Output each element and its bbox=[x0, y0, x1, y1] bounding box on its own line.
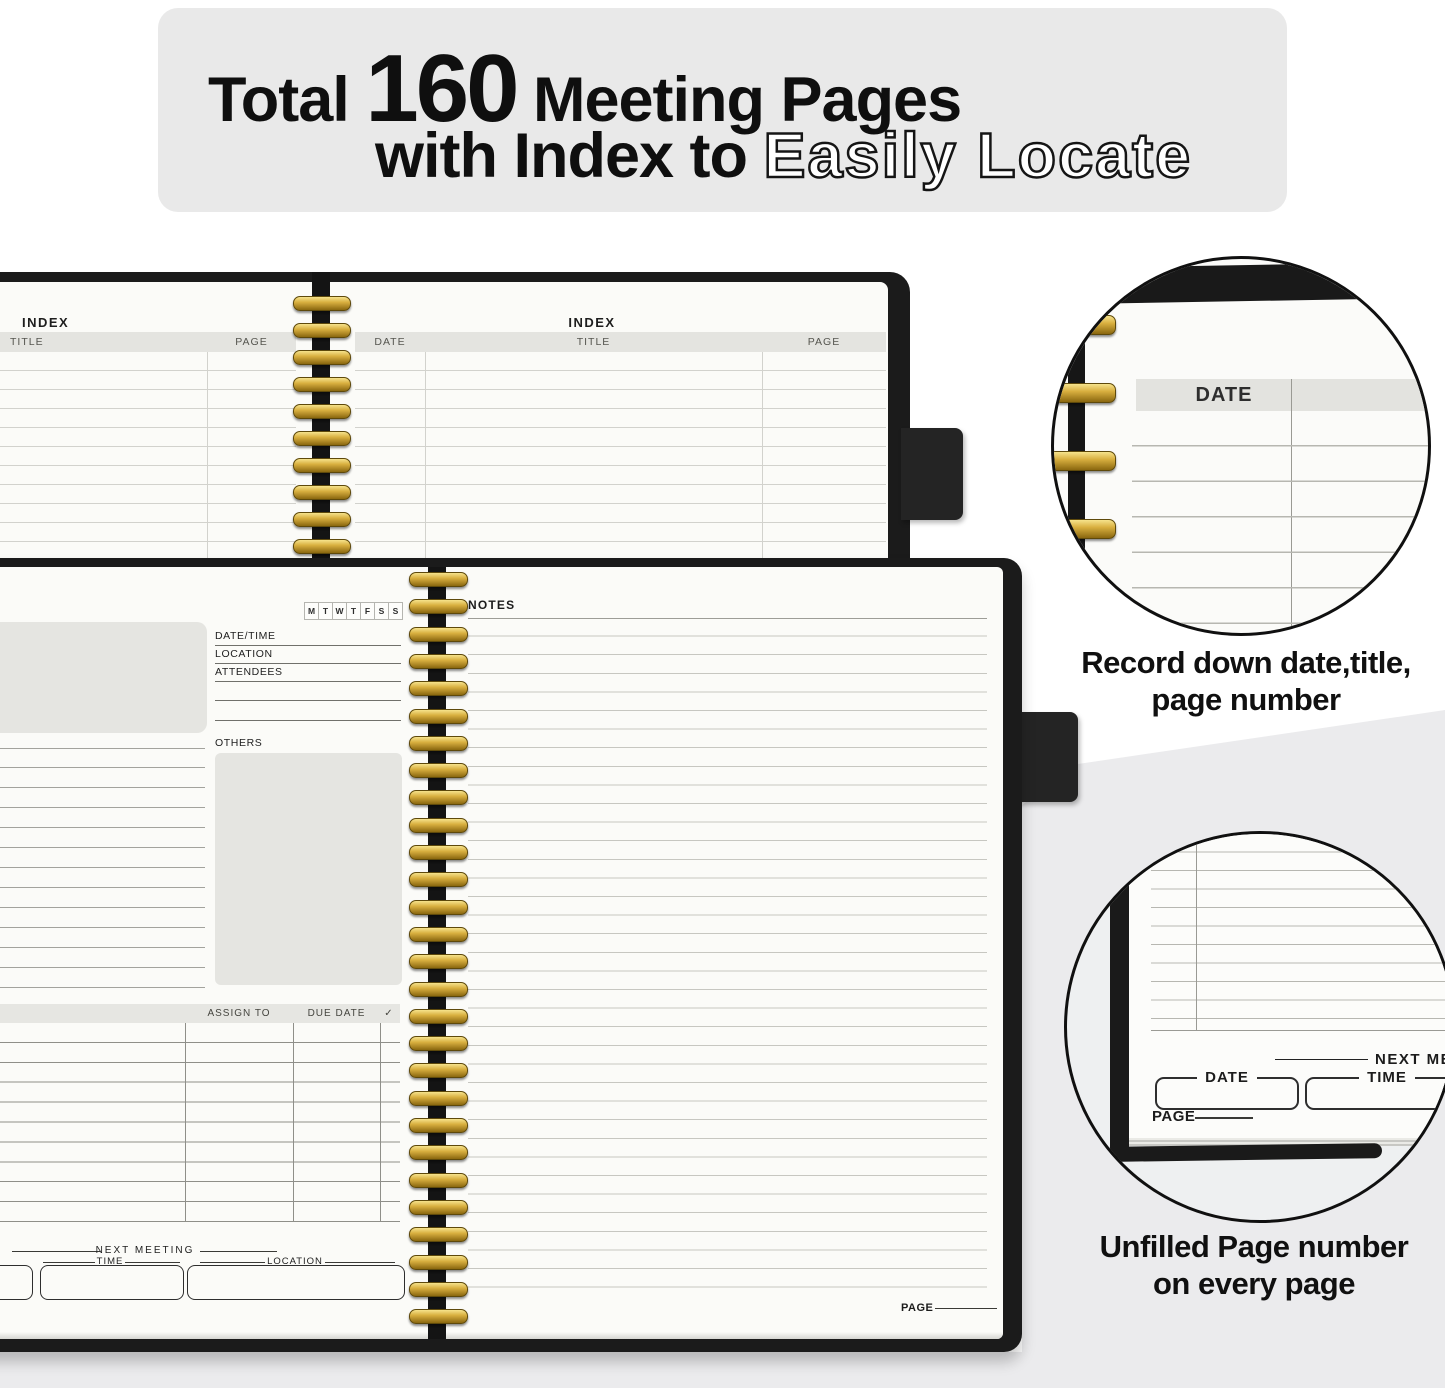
index-left-title: INDEX bbox=[22, 315, 69, 330]
spiral-coil bbox=[1051, 519, 1116, 539]
weekday-checkboxes: M T W T F S S bbox=[305, 602, 403, 620]
spiral-coil bbox=[409, 599, 468, 614]
spiral-coil bbox=[409, 709, 468, 724]
spiral-coil bbox=[293, 350, 351, 365]
index-left-rows bbox=[0, 352, 296, 560]
meeting-notebook: M T W T F S S DATE/TIME LOCATION ATTENDE… bbox=[0, 558, 1022, 1352]
weekday-cell: W bbox=[332, 602, 347, 620]
spiral-coil bbox=[409, 572, 468, 587]
magnified-cover-bottom-edge bbox=[1110, 1143, 1382, 1162]
headline-line1-prefix: Total bbox=[208, 65, 365, 135]
spiral-coil bbox=[293, 458, 351, 473]
notes-lines bbox=[468, 618, 987, 1298]
action-table-rows bbox=[0, 1023, 400, 1222]
magnified-index-rows bbox=[1132, 411, 1428, 633]
attendees-extra-line bbox=[215, 706, 401, 721]
magnified-date-header: DATE bbox=[1136, 379, 1428, 411]
weekday-cell: F bbox=[360, 602, 375, 620]
weekday-cell: T bbox=[318, 602, 333, 620]
spiral-coil bbox=[293, 296, 351, 311]
magnified-date-box: DATE bbox=[1155, 1077, 1299, 1110]
magnified-time-box-label: TIME bbox=[1359, 1069, 1415, 1086]
page-number-label: PAGE bbox=[901, 1302, 933, 1314]
index-right-rows bbox=[355, 352, 886, 560]
headline-line2: with Index to Easily Locate bbox=[375, 120, 1192, 192]
spiral-coil bbox=[1051, 587, 1116, 607]
magnified-page-label: PAGE bbox=[1152, 1108, 1195, 1125]
index-right-title: INDEX bbox=[492, 315, 692, 330]
spiral-coil bbox=[409, 927, 468, 942]
action-table-header: ASSIGN TO DUE DATE ✓ bbox=[0, 1004, 400, 1023]
weekday-cell: S bbox=[388, 602, 403, 620]
next-meeting-label: NEXT MEETING bbox=[95, 1245, 195, 1256]
action-table-divider-1 bbox=[185, 1023, 186, 1222]
index-left-col-title: TITLE bbox=[10, 332, 70, 352]
index-right-divider-1 bbox=[425, 352, 426, 560]
spiral-coil bbox=[409, 627, 468, 642]
caption-top-line1: Record down date,title, bbox=[1058, 644, 1434, 681]
weekday-cell: M bbox=[304, 602, 319, 620]
magnifier-circle-bottom: NEXT MEETIN DATE TIME PAGE bbox=[1064, 831, 1445, 1223]
page-number-field: PAGE bbox=[901, 1302, 997, 1314]
index-notebook: INDEX TITLE PAGE INDEX DATE TITLE PAGE bbox=[0, 272, 910, 602]
magnified-cover-left-edge bbox=[1110, 874, 1129, 1160]
caption-bottom-line2: on every page bbox=[1068, 1265, 1440, 1302]
spiral-coil bbox=[409, 1255, 468, 1270]
others-box bbox=[215, 753, 402, 985]
index-left-column-divider bbox=[207, 352, 208, 560]
check-header: ✓ bbox=[378, 1004, 400, 1023]
index-right-divider-2 bbox=[762, 352, 763, 560]
spiral-coil bbox=[409, 954, 468, 969]
spiral-coil bbox=[409, 1091, 468, 1106]
spiral-coil bbox=[293, 539, 351, 554]
magnified-page-number-field: PAGE bbox=[1152, 1108, 1253, 1125]
spiral-coil bbox=[409, 654, 468, 669]
spiral-coil bbox=[293, 431, 351, 446]
magnifier-circle-top: DATE bbox=[1051, 256, 1431, 636]
spiral-coil bbox=[409, 845, 468, 860]
spiral-coil bbox=[1051, 383, 1116, 403]
meeting-notebook-pages: M T W T F S S DATE/TIME LOCATION ATTENDE… bbox=[0, 567, 1003, 1339]
spiral-coil bbox=[409, 1009, 468, 1024]
spiral-coil bbox=[1051, 451, 1116, 471]
spiral-coil bbox=[409, 1173, 468, 1188]
spiral-coil bbox=[409, 681, 468, 696]
spiral-coil bbox=[409, 1145, 468, 1160]
index-left-header-row: TITLE PAGE bbox=[0, 332, 296, 352]
caption-top: Record down date,title, page number bbox=[1058, 644, 1434, 718]
caption-top-line2: page number bbox=[1058, 681, 1434, 718]
action-table-divider-2 bbox=[293, 1023, 294, 1222]
magnified-table-bottom-line bbox=[1151, 1030, 1445, 1031]
magnified-date-label: DATE bbox=[1164, 379, 1284, 411]
caption-bottom-line1: Unfilled Page number bbox=[1068, 1228, 1440, 1265]
spiral-coil bbox=[293, 512, 351, 527]
dash-line bbox=[200, 1262, 265, 1263]
magnified-time-box: TIME bbox=[1305, 1077, 1445, 1110]
due-date-header: DUE DATE bbox=[293, 1004, 380, 1023]
spiral-coil bbox=[409, 1309, 468, 1324]
spiral-coil bbox=[293, 377, 351, 392]
index-right-col-title: TITLE bbox=[425, 332, 762, 352]
others-label: OTHERS bbox=[215, 737, 262, 749]
dash-line bbox=[125, 1262, 180, 1263]
notes-label: NOTES bbox=[468, 598, 515, 612]
index-right-col-page: PAGE bbox=[762, 332, 886, 352]
spiral-coil bbox=[293, 485, 351, 500]
agenda-lines bbox=[0, 748, 205, 989]
index-right-col-date: DATE bbox=[355, 332, 425, 352]
date-time-field: DATE/TIME bbox=[215, 630, 401, 646]
magnified-next-meeting-label: NEXT MEETIN bbox=[1375, 1051, 1445, 1068]
product-image: Total 160 Meeting Pages with Index to Ea… bbox=[0, 0, 1445, 1388]
magnified-date-box-label: DATE bbox=[1197, 1069, 1257, 1086]
spiral-coil bbox=[409, 900, 468, 915]
index-notebook-pages: INDEX TITLE PAGE INDEX DATE TITLE PAGE bbox=[0, 282, 888, 602]
spiral-coil bbox=[409, 763, 468, 778]
next-date-box bbox=[0, 1265, 33, 1300]
index-right-header-row: DATE TITLE PAGE bbox=[355, 332, 886, 352]
spiral-coil bbox=[409, 1036, 468, 1051]
spiral-coil bbox=[1051, 315, 1116, 335]
spiral-coil bbox=[409, 818, 468, 833]
action-table-divider-3 bbox=[380, 1023, 381, 1222]
spiral-coil bbox=[409, 1118, 468, 1133]
next-time-box bbox=[40, 1265, 184, 1300]
closure-tab-top bbox=[901, 428, 963, 520]
magnified-page-blank bbox=[1195, 1117, 1253, 1119]
spiral-coil bbox=[409, 736, 468, 751]
spiral-coil bbox=[409, 1227, 468, 1242]
attendees-field: ATTENDEES bbox=[215, 666, 401, 682]
spiral-coil bbox=[409, 790, 468, 805]
headline-outline-text: Easily Locate bbox=[764, 121, 1193, 191]
location-field: LOCATION bbox=[215, 648, 401, 664]
attendees-extra-line bbox=[215, 687, 401, 701]
spiral-coil bbox=[409, 1200, 468, 1215]
dash-line bbox=[12, 1251, 100, 1252]
magnified-table-divider bbox=[1196, 834, 1197, 1030]
headline-line2-text: with Index to bbox=[375, 121, 764, 191]
weekday-cell: T bbox=[346, 602, 361, 620]
spiral-coil bbox=[293, 323, 351, 338]
caption-bottom: Unfilled Page number on every page bbox=[1068, 1228, 1440, 1302]
dash-line bbox=[325, 1262, 395, 1263]
spiral-coil bbox=[409, 1063, 468, 1078]
assign-to-header: ASSIGN TO bbox=[185, 1004, 293, 1023]
dash-line bbox=[200, 1251, 277, 1252]
page-number-blank bbox=[935, 1308, 997, 1309]
index-left-col-page: PAGE bbox=[207, 332, 296, 352]
weekday-cell: S bbox=[374, 602, 389, 620]
topic-box bbox=[0, 622, 207, 733]
headline-banner: Total 160 Meeting Pages with Index to Ea… bbox=[158, 8, 1287, 212]
spiral-coil bbox=[409, 982, 468, 997]
next-location-box bbox=[187, 1265, 405, 1300]
dash-line bbox=[1275, 1059, 1368, 1060]
spiral-coil bbox=[293, 404, 351, 419]
spiral-coil bbox=[409, 872, 468, 887]
magnified-cover-edge bbox=[1051, 261, 1431, 304]
spiral-coil bbox=[409, 1282, 468, 1297]
